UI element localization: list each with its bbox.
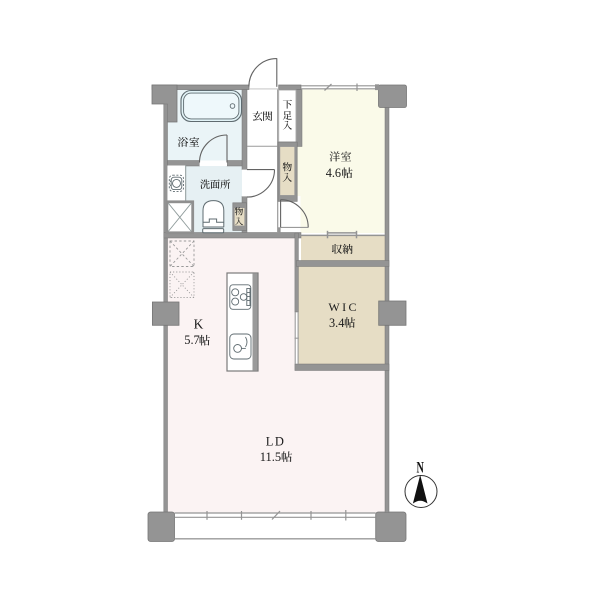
svg-text:LD: LD: [266, 435, 286, 449]
svg-text:11.5: 11.5: [260, 450, 281, 464]
svg-text:WIC: WIC: [328, 300, 359, 314]
svg-text:3.4: 3.4: [329, 316, 344, 330]
svg-text:4.6: 4.6: [326, 166, 341, 180]
svg-text:5.7: 5.7: [184, 333, 200, 347]
svg-text:K: K: [194, 316, 204, 331]
svg-text:N: N: [417, 458, 425, 476]
